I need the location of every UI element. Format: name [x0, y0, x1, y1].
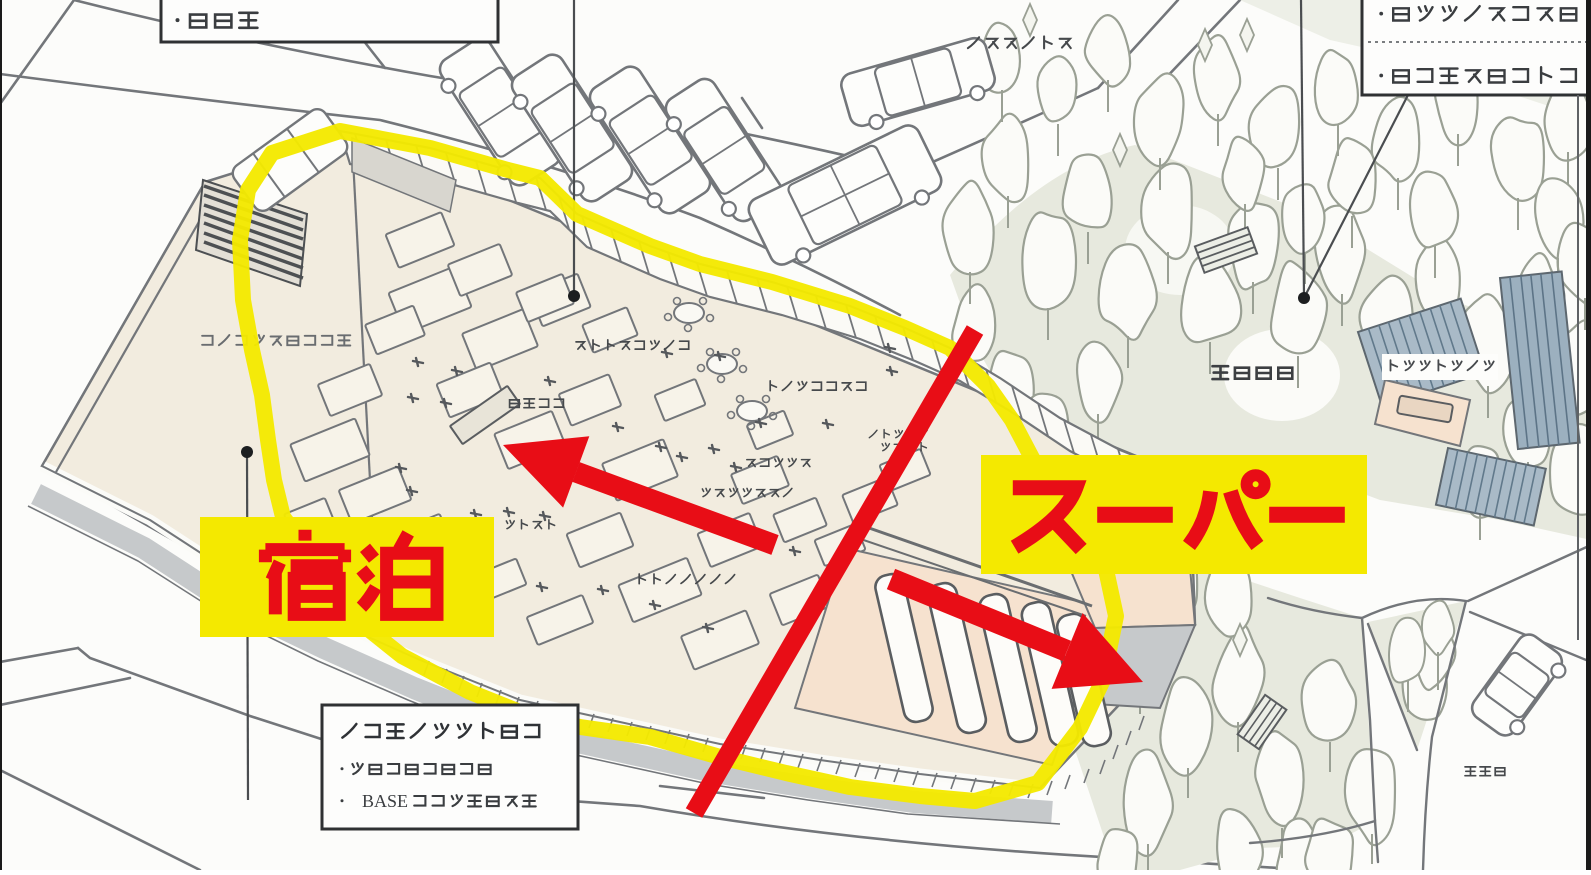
svg-text:BASE: BASE	[362, 791, 408, 811]
